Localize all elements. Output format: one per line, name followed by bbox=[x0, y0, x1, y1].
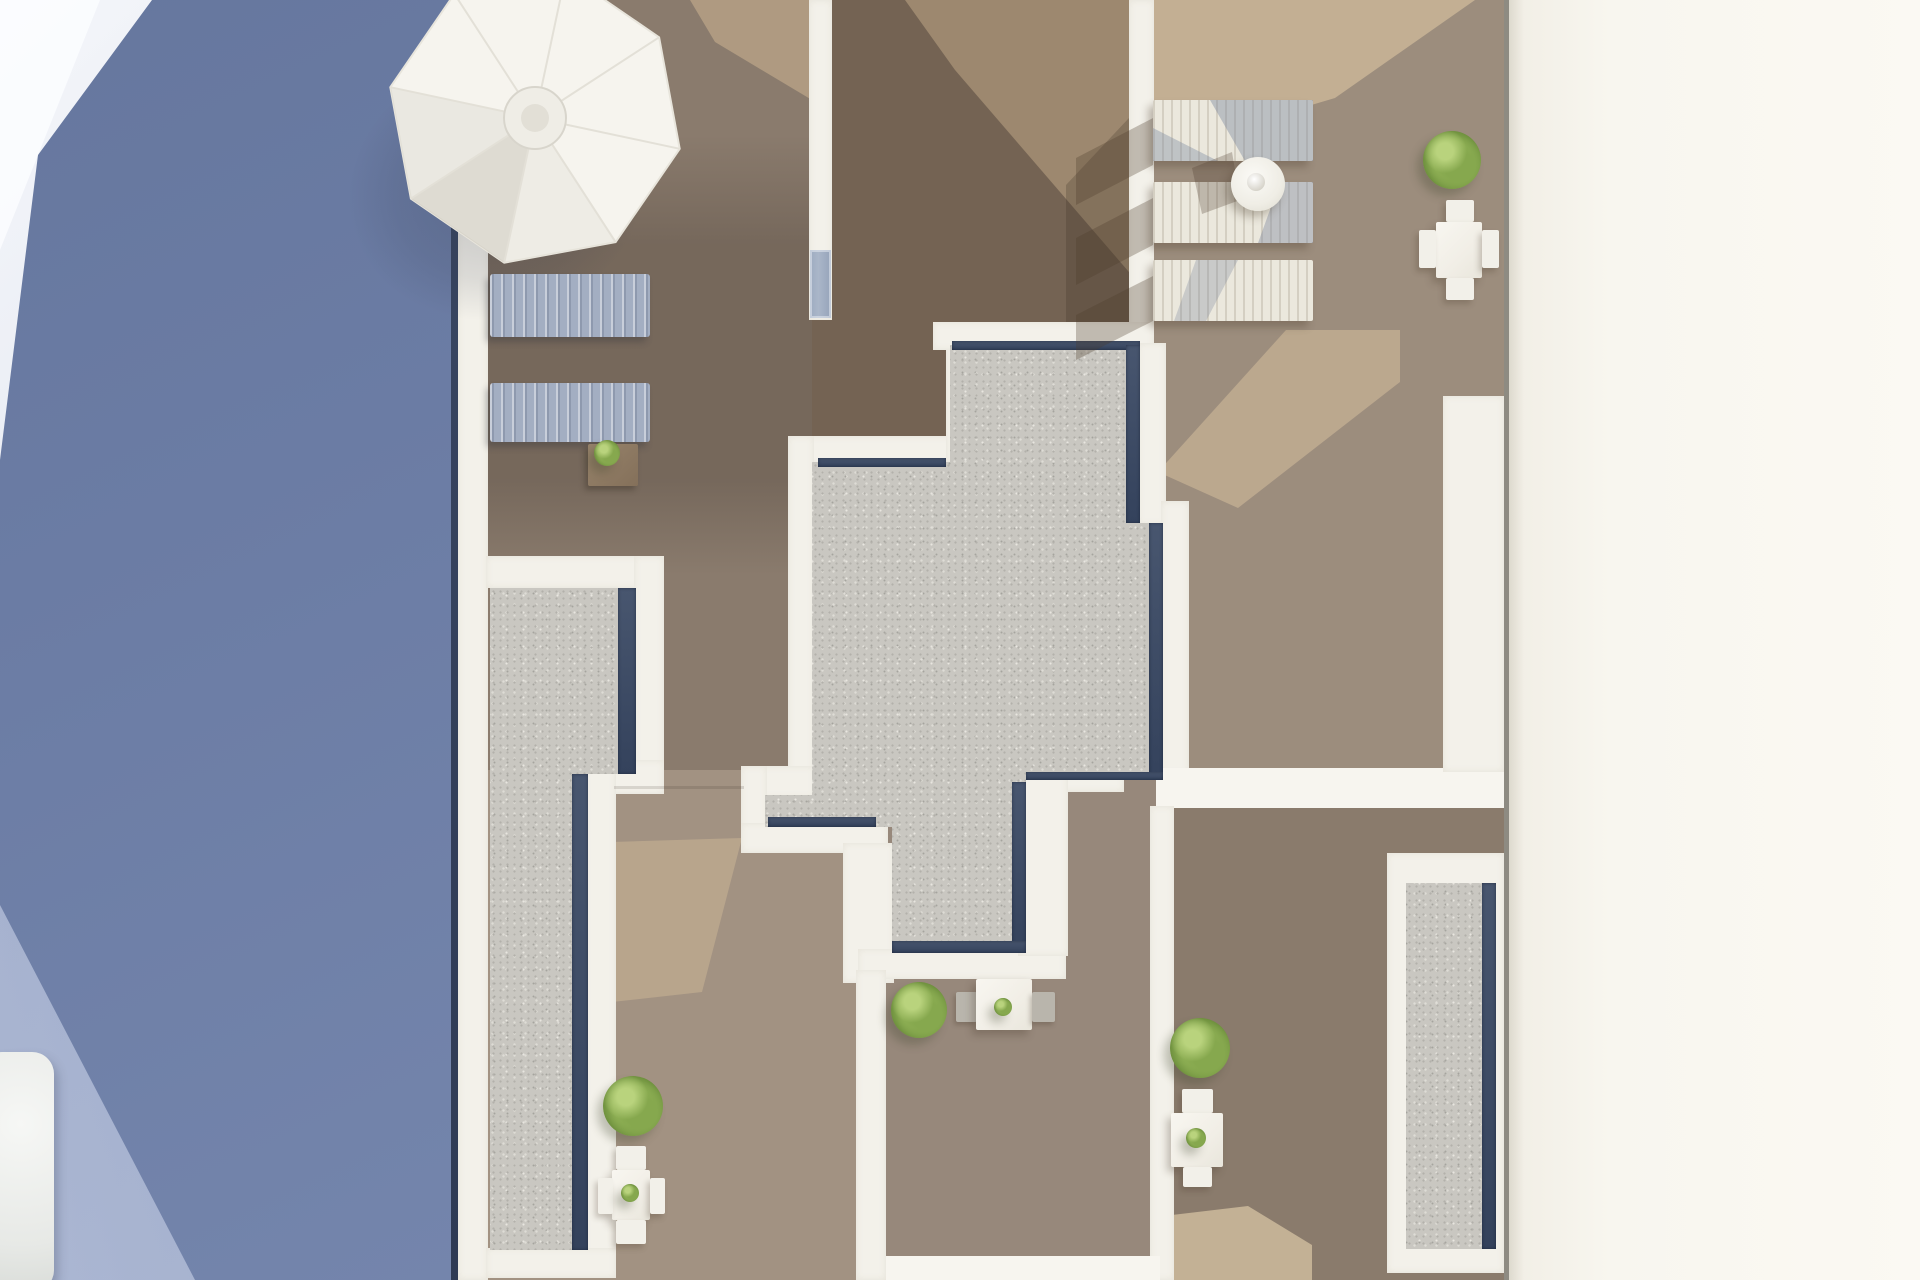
dining-chair bbox=[1446, 200, 1474, 222]
drain-channel-center-right-mid bbox=[1149, 523, 1163, 780]
divider-wall-horizontal bbox=[1156, 768, 1504, 808]
planter-west-frame-bottom bbox=[486, 1248, 616, 1278]
table-plant bbox=[994, 998, 1012, 1016]
dining-chair bbox=[1182, 1089, 1213, 1113]
tree bbox=[891, 982, 947, 1038]
planter-west-frame-right-upper bbox=[634, 556, 664, 776]
table-plant bbox=[1186, 1128, 1206, 1148]
drain-channel-west-lower bbox=[572, 774, 588, 1250]
roof-frame-right-upper bbox=[1138, 343, 1166, 525]
roof-frame-left-band bbox=[788, 436, 814, 800]
dining-chair bbox=[650, 1178, 665, 1214]
table-plant bbox=[621, 1184, 639, 1202]
drain-channel-center-right-upper bbox=[1126, 345, 1140, 523]
planter-east-gravel bbox=[1406, 883, 1482, 1249]
drain-channel-center-stem-right bbox=[1012, 782, 1026, 953]
dining-chair bbox=[1446, 278, 1474, 300]
potted-plant bbox=[594, 440, 620, 466]
sun-lounger bbox=[490, 383, 650, 442]
white-dome-structure bbox=[0, 1052, 54, 1280]
dining-chair bbox=[616, 1146, 646, 1170]
roof-frame-right-mid bbox=[1161, 501, 1189, 774]
sun-lounger-white bbox=[1153, 100, 1313, 161]
bush bbox=[603, 1076, 663, 1136]
drain-channel-center-stem-bottom bbox=[892, 941, 1026, 953]
cream-margin bbox=[1508, 0, 1920, 1280]
bush bbox=[1423, 131, 1481, 189]
divider-wall-3 bbox=[856, 970, 886, 1280]
dining-table bbox=[1436, 222, 1482, 278]
drain-channel-center-topleft bbox=[818, 458, 946, 467]
dining-chair bbox=[616, 1220, 646, 1244]
bench-gray bbox=[1032, 992, 1055, 1022]
divider-wall-2 bbox=[1129, 0, 1154, 340]
bench-gray bbox=[956, 992, 977, 1022]
bottom-wall-segment bbox=[886, 1256, 1160, 1280]
drain-channel-center-topright bbox=[952, 341, 1140, 350]
drain-channel-center-notch bbox=[768, 817, 876, 827]
rooftop-render bbox=[0, 0, 1920, 1280]
drain-channel-east bbox=[1482, 883, 1496, 1249]
table-glass bbox=[1247, 173, 1265, 191]
drain-channel-west-upper bbox=[618, 588, 636, 774]
parasol-pole-top bbox=[521, 104, 549, 132]
deck-seam-line bbox=[614, 786, 744, 789]
dining-chair bbox=[598, 1178, 613, 1214]
dining-chair bbox=[1482, 230, 1499, 268]
sun-lounger bbox=[490, 274, 650, 337]
sun-lounger-white bbox=[1153, 260, 1313, 321]
walkway-east bbox=[1443, 396, 1504, 772]
dining-chair bbox=[1183, 1167, 1212, 1187]
drain-channel-center-step bbox=[1026, 772, 1163, 780]
parasol bbox=[375, 0, 705, 275]
dining-chair bbox=[1419, 230, 1436, 268]
bush bbox=[1170, 1018, 1230, 1078]
terrace-gate bbox=[810, 250, 831, 318]
cream-margin-shadow bbox=[1508, 0, 1524, 1280]
